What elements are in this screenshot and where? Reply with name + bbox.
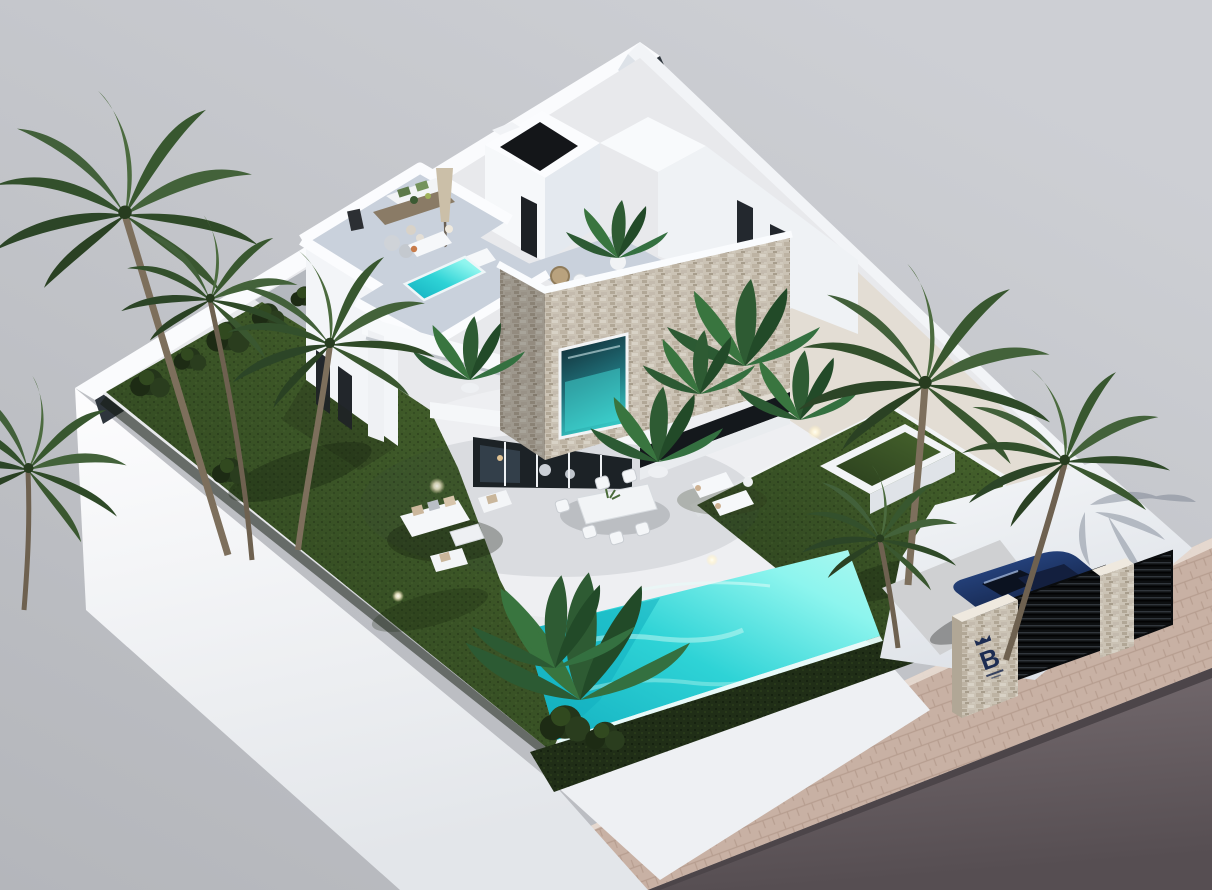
lounger-pillow [411, 246, 417, 252]
lounger-pillow [695, 485, 701, 491]
table-plant [425, 193, 431, 199]
table-plant [410, 196, 418, 204]
scene-svg: B [0, 0, 1212, 890]
passage-uplight [808, 425, 822, 439]
plant-pot [461, 383, 479, 393]
pouf [384, 235, 400, 251]
side-table [743, 477, 753, 487]
pillar-side [952, 616, 962, 718]
interior-light [497, 455, 503, 461]
interior-furniture [539, 464, 551, 476]
architectural-render: B [0, 0, 1212, 890]
lounger-pillow [715, 503, 721, 509]
parasol-vase [445, 225, 453, 233]
louver-panel [1130, 551, 1172, 640]
garden-uplight [706, 554, 718, 566]
pillar-front [1100, 564, 1134, 658]
plant-pot [648, 466, 668, 478]
interior-room [480, 445, 520, 483]
vase [406, 225, 416, 235]
tower-door [521, 196, 537, 258]
garden-uplight [392, 590, 404, 602]
